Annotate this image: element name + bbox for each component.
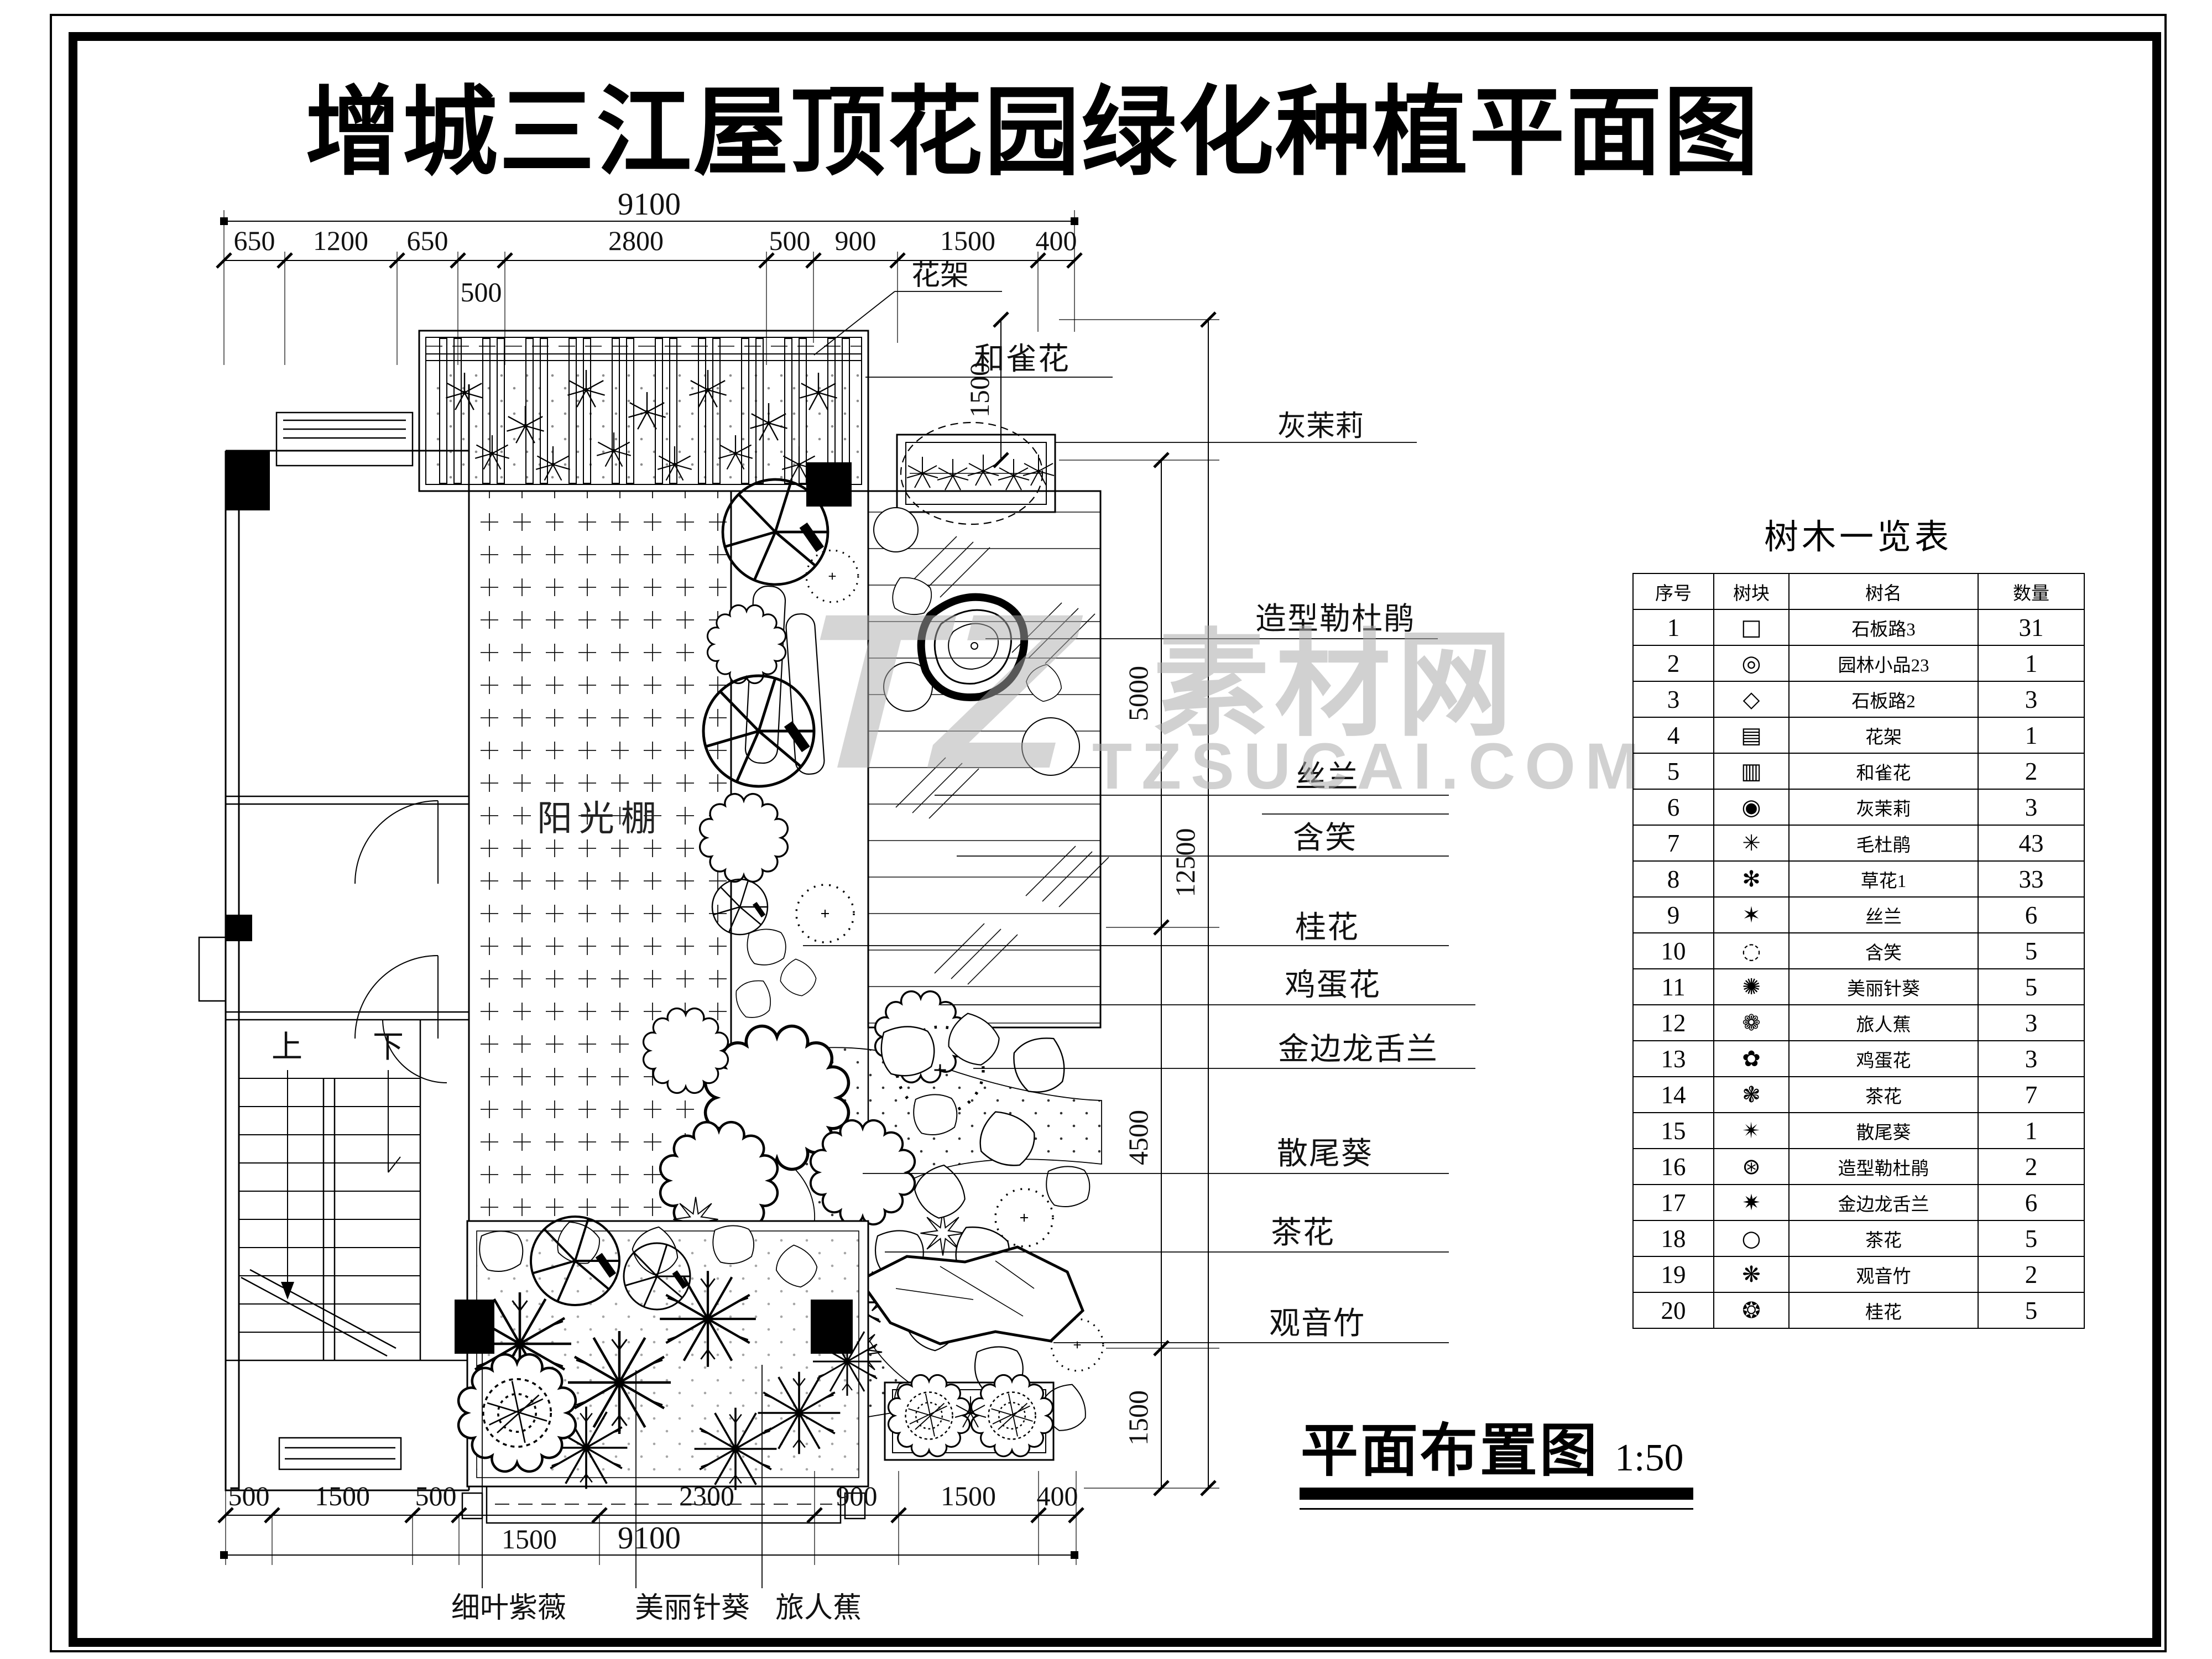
dim-bot-seg: 1500 bbox=[315, 1480, 370, 1511]
plant-block-icon: ✴ bbox=[1714, 1113, 1789, 1149]
dim-top-seg: 650 bbox=[234, 225, 275, 256]
plant-row: 17 ✷ 金边龙舌兰 6 bbox=[1633, 1185, 2084, 1220]
dim-top-seg: 1500 bbox=[940, 225, 995, 256]
callout-bottom: 美丽针葵 bbox=[635, 1593, 750, 1624]
dim-bot-seg: 500 bbox=[415, 1480, 457, 1511]
callout-right: 金边龙舌兰 bbox=[1278, 1032, 1438, 1067]
plant-no: 7 bbox=[1633, 825, 1714, 861]
wall-recess bbox=[199, 937, 226, 1001]
bamboo-icon bbox=[888, 1375, 969, 1456]
plant-name: 含笑 bbox=[1789, 933, 1978, 969]
plant-qty: 3 bbox=[1978, 681, 2084, 717]
plant-qty: 1 bbox=[1978, 1113, 2084, 1149]
plant-no: 8 bbox=[1633, 861, 1714, 897]
plant-no: 5 bbox=[1633, 753, 1714, 789]
parapet-planter-top bbox=[276, 413, 413, 466]
michelia-tree-icon bbox=[796, 885, 854, 942]
plant-block-icon: □ bbox=[1714, 609, 1789, 645]
plant-no: 1 bbox=[1633, 609, 1714, 645]
plant-qty: 1 bbox=[1978, 717, 2084, 753]
dim-top-seg: 650 bbox=[407, 225, 448, 256]
dim-top-below: 500 bbox=[461, 276, 502, 307]
plant-row: 10 ◌ 含笑 5 bbox=[1633, 933, 2084, 969]
plant-qty: 3 bbox=[1978, 1041, 2084, 1077]
sunroom-label: 阳光棚 bbox=[537, 799, 663, 838]
plant-name: 丝兰 bbox=[1789, 897, 1978, 933]
plant-name: 造型勒杜鹃 bbox=[1789, 1149, 1978, 1185]
plant-qty: 5 bbox=[1978, 1220, 2084, 1256]
dim-bot-overall: 9100 bbox=[618, 1521, 681, 1556]
plant-no: 20 bbox=[1633, 1292, 1714, 1328]
plant-name: 观音竹 bbox=[1789, 1256, 1978, 1292]
col-header-name: 树名 bbox=[1789, 573, 1978, 609]
window-bottom bbox=[279, 1438, 401, 1469]
dim-right-overall: 12500 bbox=[1170, 828, 1201, 898]
dim-top-seg: 400 bbox=[1036, 225, 1077, 256]
plant-row: 1 □ 石板路3 31 bbox=[1633, 609, 2084, 645]
plant-name: 桂花 bbox=[1789, 1292, 1978, 1328]
plant-row: 19 ❋ 观音竹 2 bbox=[1633, 1256, 2084, 1292]
callout-bottom: 细叶紫薇 bbox=[451, 1593, 566, 1624]
plant-row: 11 ✺ 美丽针葵 5 bbox=[1633, 969, 2084, 1005]
plant-name: 散尾葵 bbox=[1789, 1113, 1978, 1149]
callout-bottom: 旅人蕉 bbox=[775, 1593, 862, 1624]
plant-table: 树木一览表 序号 树块 树名 数量 1 □ 石板路3 31 bbox=[1632, 509, 2084, 1329]
plant-table-title: 树木一览表 bbox=[1632, 509, 2084, 559]
plant-block-icon: ◇ bbox=[1714, 681, 1789, 717]
callout-huimoli: 灰茉莉 bbox=[1277, 411, 1364, 442]
caption-scale: 1:50 bbox=[1615, 1437, 1683, 1479]
callout-right: 含笑 bbox=[1293, 821, 1357, 855]
col-header-block: 树块 bbox=[1714, 573, 1789, 609]
plant-row: 9 ✶ 丝兰 6 bbox=[1633, 897, 2084, 933]
drawing-sheet: 增城三江屋顶花园绿化种植平面图 bbox=[0, 0, 2212, 1659]
plant-qty: 2 bbox=[1978, 1149, 2084, 1185]
plant-name: 旅人蕉 bbox=[1789, 1005, 1978, 1041]
plant-no: 18 bbox=[1633, 1220, 1714, 1256]
terrace-bottom-planter bbox=[462, 1486, 865, 1523]
plant-no: 9 bbox=[1633, 897, 1714, 933]
plant-no: 3 bbox=[1633, 681, 1714, 717]
plant-block-icon: ✷ bbox=[1714, 1185, 1789, 1220]
door-arc-1 bbox=[355, 801, 438, 884]
dim-top-seg: 1200 bbox=[313, 225, 368, 256]
plant-qty: 3 bbox=[1978, 789, 2084, 825]
dim-right-seg: 5000 bbox=[1123, 666, 1154, 721]
plant-row: 3 ◇ 石板路2 3 bbox=[1633, 681, 2084, 717]
dim-top-seg: 500 bbox=[769, 225, 811, 256]
plant-qty: 1 bbox=[1978, 645, 2084, 681]
plant-qty: 5 bbox=[1978, 933, 2084, 969]
plant-no: 10 bbox=[1633, 933, 1714, 969]
plant-qty: 5 bbox=[1978, 969, 2084, 1005]
plant-qty: 31 bbox=[1978, 609, 2084, 645]
dim-bot-seg: 900 bbox=[836, 1480, 878, 1511]
plant-row: 6 ◉ 灰茉莉 3 bbox=[1633, 789, 2084, 825]
plant-name: 草花1 bbox=[1789, 861, 1978, 897]
dim-right-seg: 1500 bbox=[1123, 1390, 1154, 1446]
dim-top-seg: 2800 bbox=[608, 225, 664, 256]
plant-block-icon: ✻ bbox=[1714, 861, 1789, 897]
plant-row: 8 ✻ 草花1 33 bbox=[1633, 861, 2084, 897]
plant-block-icon: ◌ bbox=[1714, 933, 1789, 969]
plant-name: 美丽针葵 bbox=[1789, 969, 1978, 1005]
dim-bot-seg: 500 bbox=[228, 1480, 270, 1511]
plant-qty: 3 bbox=[1978, 1005, 2084, 1041]
plant-no: 11 bbox=[1633, 969, 1714, 1005]
callout-pergola: 花架 bbox=[911, 260, 969, 291]
plant-name: 茶花 bbox=[1789, 1077, 1978, 1113]
plant-row: 15 ✴ 散尾葵 1 bbox=[1633, 1113, 2084, 1149]
plant-qty: 5 bbox=[1978, 1292, 2084, 1328]
plant-row: 18 ○ 茶花 5 bbox=[1633, 1220, 2084, 1256]
plant-block-icon: ◎ bbox=[1714, 645, 1789, 681]
callout-right: 观音竹 bbox=[1269, 1307, 1365, 1341]
plant-table-header: 序号 树块 树名 数量 bbox=[1633, 573, 2084, 609]
dim-top-overall: 9100 bbox=[618, 187, 681, 222]
plant-block-icon: ✿ bbox=[1714, 1041, 1789, 1077]
callout-hequehua: 和雀花 bbox=[974, 342, 1070, 377]
plant-block-icon: ✶ bbox=[1714, 897, 1789, 933]
plant-qty: 2 bbox=[1978, 1256, 2084, 1292]
door-arc-2 bbox=[355, 956, 438, 1039]
pergola bbox=[419, 331, 868, 491]
plant-name: 石板路2 bbox=[1789, 681, 1978, 717]
caption-underline-thick bbox=[1300, 1488, 1693, 1500]
plant-block-icon: ❋ bbox=[1714, 1256, 1789, 1292]
plant-qty: 43 bbox=[1978, 825, 2084, 861]
plant-row: 7 ✳ 毛杜鹃 43 bbox=[1633, 825, 2084, 861]
dim-bot-seg: 1500 bbox=[941, 1480, 996, 1511]
plant-no: 4 bbox=[1633, 717, 1714, 753]
callout-right: 茶花 bbox=[1271, 1216, 1335, 1250]
plant-block-icon: ⊛ bbox=[1714, 1149, 1789, 1185]
bamboo-planter bbox=[885, 1375, 1053, 1460]
plant-name: 灰茉莉 bbox=[1789, 789, 1978, 825]
plant-block-icon: ◉ bbox=[1714, 789, 1789, 825]
plant-row: 13 ✿ 鸡蛋花 3 bbox=[1633, 1041, 2084, 1077]
plant-block-icon: ❃ bbox=[1714, 1077, 1789, 1113]
plant-no: 19 bbox=[1633, 1256, 1714, 1292]
plant-row: 5 ▥ 和雀花 2 bbox=[1633, 753, 2084, 789]
plant-block-icon: ❁ bbox=[1714, 1005, 1789, 1041]
dim-bot-below: 1500 bbox=[502, 1524, 557, 1554]
plant-name: 毛杜鹃 bbox=[1789, 825, 1978, 861]
dim-bot-seg: 400 bbox=[1037, 1480, 1078, 1511]
plant-block-icon: ✳ bbox=[1714, 825, 1789, 861]
plant-name: 和雀花 bbox=[1789, 753, 1978, 789]
plant-no: 14 bbox=[1633, 1077, 1714, 1113]
plant-row: 2 ◎ 园林小品23 1 bbox=[1633, 645, 2084, 681]
plant-block-icon: ▤ bbox=[1714, 717, 1789, 753]
plant-block-icon: ▥ bbox=[1714, 753, 1789, 789]
bamboo-icon bbox=[971, 1375, 1052, 1456]
stair-break-line bbox=[241, 1270, 396, 1356]
plant-name: 园林小品23 bbox=[1789, 645, 1978, 681]
plant-no: 13 bbox=[1633, 1041, 1714, 1077]
callout-right: 鸡蛋花 bbox=[1285, 968, 1381, 1003]
plant-no: 17 bbox=[1633, 1185, 1714, 1220]
plant-block-icon: ✺ bbox=[1714, 969, 1789, 1005]
plant-row: 4 ▤ 花架 1 bbox=[1633, 717, 2084, 753]
plant-no: 2 bbox=[1633, 645, 1714, 681]
caption-underline-thin bbox=[1300, 1508, 1693, 1510]
plant-block-icon: ○ bbox=[1714, 1220, 1789, 1256]
plant-qty: 6 bbox=[1978, 1185, 2084, 1220]
plant-row: 12 ❁ 旅人蕉 3 bbox=[1633, 1005, 2084, 1041]
plant-name: 花架 bbox=[1789, 717, 1978, 753]
dim-bot-seg: 2300 bbox=[679, 1480, 734, 1511]
staircase bbox=[239, 1070, 420, 1360]
stair-down-label: 下 bbox=[373, 1030, 405, 1065]
callout-right: 散尾葵 bbox=[1277, 1137, 1373, 1171]
col-header-no: 序号 bbox=[1633, 573, 1714, 609]
col-header-qty: 数量 bbox=[1978, 573, 2084, 609]
plant-qty: 33 bbox=[1978, 861, 2084, 897]
plant-no: 6 bbox=[1633, 789, 1714, 825]
plant-no: 16 bbox=[1633, 1149, 1714, 1185]
stair-up-label: 上 bbox=[272, 1030, 304, 1065]
plant-qty: 7 bbox=[1978, 1077, 2084, 1113]
palm-terrace bbox=[458, 1217, 881, 1523]
plant-qty: 2 bbox=[1978, 753, 2084, 789]
dim-top-seg: 900 bbox=[835, 225, 877, 256]
stair-arrow-down-icon bbox=[281, 1282, 294, 1300]
crape-myrtle-icon bbox=[458, 1354, 576, 1472]
plant-no: 12 bbox=[1633, 1005, 1714, 1041]
plant-row: 14 ❃ 茶花 7 bbox=[1633, 1077, 2084, 1113]
plant-row: 20 ❂ 桂花 5 bbox=[1633, 1292, 2084, 1328]
plant-name: 鸡蛋花 bbox=[1789, 1041, 1978, 1077]
plant-row: 16 ⊛ 造型勒杜鹃 2 bbox=[1633, 1149, 2084, 1185]
sunroom-grid bbox=[469, 491, 731, 1222]
plant-no: 15 bbox=[1633, 1113, 1714, 1149]
plant-name: 茶花 bbox=[1789, 1220, 1978, 1256]
caption-text: 平面布置图 bbox=[1301, 1420, 1599, 1483]
dim-right-seg: 4500 bbox=[1123, 1110, 1154, 1165]
plant-block-icon: ❂ bbox=[1714, 1292, 1789, 1328]
plant-qty: 6 bbox=[1978, 897, 2084, 933]
plan-caption: 平面布置图1:50 bbox=[1301, 1404, 1683, 1487]
plant-name: 金边龙舌兰 bbox=[1789, 1185, 1978, 1220]
watermark-url: TZSUCAI.COM bbox=[1092, 729, 1648, 804]
callout-right: 桂花 bbox=[1295, 911, 1359, 945]
plant-name: 石板路3 bbox=[1789, 609, 1978, 645]
